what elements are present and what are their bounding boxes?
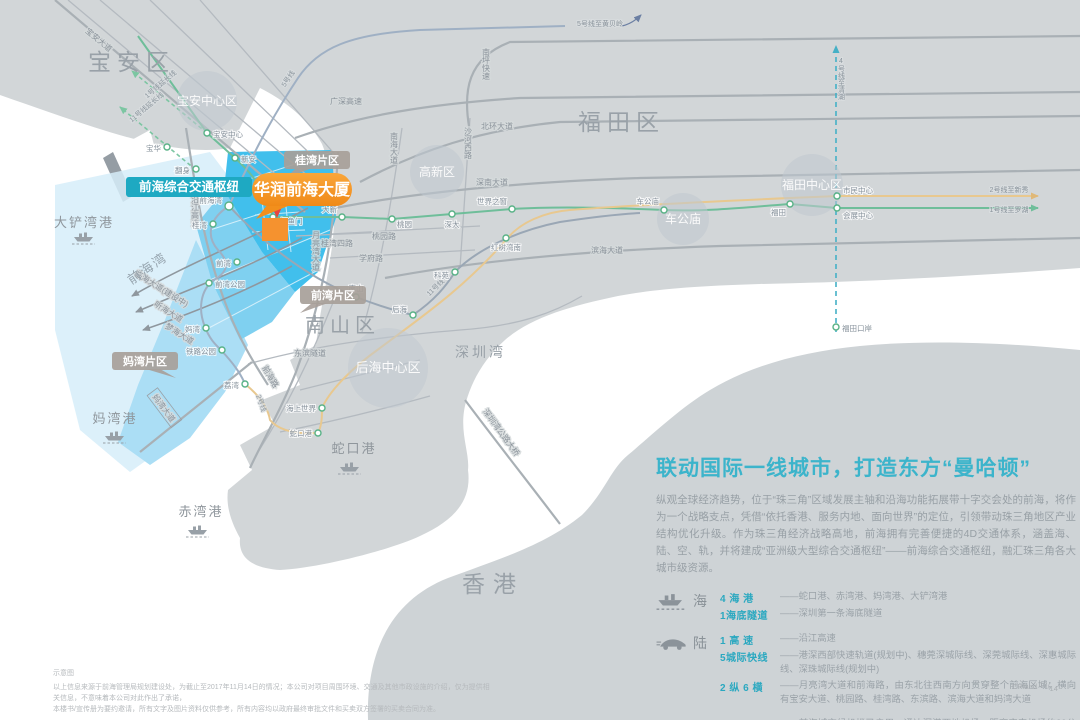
station-dot [206,280,212,286]
station-dot [315,430,321,436]
station-dot [452,269,458,275]
disclaimer-line: 以上信息来源于前海管理局规划建设处，为截止至2017年11月14日的情况；本公司… [53,683,493,705]
station-label: 红树湾南 [491,242,521,252]
station-dot [232,155,238,161]
station-label: 新安 [241,154,256,164]
brand-mark: CRland [1012,682,1037,691]
station-dot [234,259,240,265]
legend-row-desc: ——深圳第一条海底隧道 [780,607,882,622]
page-number: CRland 13/14 [1012,682,1058,691]
port-label: 蛇口港 [331,441,376,456]
road-label: 东滨隧道 [294,348,326,358]
car-icon [656,633,688,653]
station-dot [410,312,416,318]
station-label: 桃园 [397,219,412,229]
station-dot [503,235,509,241]
ship-icon [656,591,688,611]
station-label: 后海 [392,304,407,314]
road-label: 月亮湾大道 [312,231,321,272]
zone-circle-label: 后海中心区 [355,360,420,375]
station-dot [193,166,199,172]
station-label: 宝华 [146,143,161,153]
port-label: 赤湾港 [178,504,223,519]
station-label: 荔湾 [224,380,239,390]
legend-row-desc: ——沿江高速 [780,632,836,647]
road-label: 北环大道 [481,121,513,131]
road-label: 广深高速 [330,96,362,106]
legend: 海 4 海 港——蛇口港、赤湾港、妈湾港、大铲湾港 1海底隧道——深圳第一条海底… [656,590,1076,720]
station-dot [449,211,455,217]
zone-circle-label: 宝安中心区 [177,93,237,108]
station-label: 翻身 [175,165,190,175]
station-label: 蛇口港 [290,428,313,438]
page-number-top: 13 [1039,680,1047,689]
metro-line-label: 1号线至罗湖 [990,205,1029,214]
station-label: 妈湾 [185,324,200,334]
station-dot [787,201,793,207]
legend-row: 1 高 速——沿江高速 [720,632,1076,647]
station-label: 铁路公园 [186,346,216,356]
district-label: 深圳湾 [455,344,506,360]
area-tag-label: 桂湾片区 [294,153,339,167]
disclaimer-tag: 示意图 [53,669,493,680]
station-dot [203,325,209,331]
port-label: 妈湾港 [92,411,137,426]
legend-group-land: 陆 1 高 速——沿江高速 5城际快线——港深西部快速轨道(规划中)、穗莞深城际… [656,632,1076,709]
metro-line-label: 4号线至清湖 [838,58,846,101]
port-label: 大铲湾港 [54,215,114,230]
legend-row-head: 2 纵 6 横 [720,679,780,707]
disclaimer: 示意图 以上信息来源于前海管理局规划建设处，为截止至2017年11月14日的情况… [53,669,493,715]
legend-row: 5城际快线——港深西部快速轨道(规划中)、穗莞深城际线、深莞城际线、深惠城际线、… [720,649,1076,677]
road-label: 深南大道 [476,177,508,187]
station-label: 世界之窗 [477,196,507,206]
area-tag-label: 前湾片区 [311,288,355,302]
station-label: 宝安中心 [213,129,243,139]
legend-row: 4 海 港——蛇口港、赤湾港、妈湾港、大铲湾港 [720,590,1076,605]
station-dot [225,202,233,210]
panel-title: 联动国际一线城市，打造东方“曼哈顿” [656,452,1076,482]
road-label: 桃园路 [372,231,396,241]
station-dot [164,144,170,150]
building-footprint [262,218,288,241]
legend-row-head: 1 高 速 [720,632,780,647]
station-dot [319,405,325,411]
road-label: 南坪快速 [482,47,491,81]
legend-category-label: 陆 [693,633,707,653]
station-label: 桂湾 [192,220,207,230]
station-dot [389,216,395,222]
page-number-bottom: 14 [1050,684,1058,693]
legend-category-label: 海 [693,591,707,611]
legend-row-head: 4 海 港 [720,590,780,605]
station-label: 科苑 [434,270,449,280]
district-label: 宝安区 [88,49,175,75]
panel-paragraph: 纵观全球经济趋势，位于“珠三角”区域发展主轴和沿海功能拓展带十字交会处的前海，将… [656,492,1076,577]
zone-circle-label: 车公庙 [665,211,701,226]
station-label: 前湾公园 [215,279,245,289]
station-label: 车公庙 [637,196,660,206]
station-label: 福田口岸 [842,324,872,333]
road-label: 南海大道 [390,131,399,165]
station-dot [834,193,840,199]
hub-tag: 前海综合交通枢纽 [126,177,252,197]
disclaimer-line: 本楼书/宣传册为要约邀请，所有文字及图片资料仅供参考，所有内容均以政府最终审批文… [53,705,493,716]
hub-tag-label: 前海综合交通枢纽 [139,179,240,194]
station-label: 深大 [445,219,460,229]
legend-row-head: 1海底隧道 [720,607,780,622]
district-label: 福田区 [578,109,665,135]
station-dot [219,347,225,353]
road-label: 学府路 [359,253,383,263]
station-dot [204,130,210,136]
metro-line-label: 5号线至黄贝岭 [577,19,623,28]
building-bubble-label: 华润前海大厦 [254,180,351,199]
zone-circle-label: 高新区 [419,164,455,179]
station-label: 福田 [771,208,786,217]
station-label: 前湾 [216,258,231,268]
station-dot [661,207,667,213]
legend-group-sea: 海 4 海 港——蛇口港、赤湾港、妈湾港、大铲湾港 1海底隧道——深圳第一条海底… [656,590,1076,624]
area-tag-label: 妈湾片区 [123,354,167,368]
zone-circle-label: 福田中心区 [782,177,842,192]
station-dot [834,205,840,211]
info-panel: 联动国际一线城市，打造东方“曼哈顿” 纵观全球经济趋势，位于“珠三角”区域发展主… [656,452,1076,720]
station-dot [509,206,515,212]
legend-row-desc: ——蛇口港、赤湾港、妈湾港、大铲湾港 [780,590,947,605]
road-label: 沙河西路 [464,127,473,159]
road-label: 桂湾四路 [321,238,353,248]
legend-row: 1海底隧道——深圳第一条海底隧道 [720,607,1076,622]
station-label: 会展中心 [843,210,873,220]
district-label: 香港 [462,571,524,597]
brochure-map-page: 宝安中心区 高新区 福田中心区 车公庙 后海中心区 宝安大道 广深高速 北环大道… [0,0,1080,720]
metro-line-label: 2号线至新秀 [990,185,1029,194]
station-dot [339,214,345,220]
station-dot [242,381,248,387]
station-label: 海上世界 [286,403,316,413]
station-dot [833,324,839,330]
station-label: 市民中心 [843,185,873,195]
station-dot [210,221,216,227]
legend-row-head: 5城际快线 [720,649,780,677]
district-label: 南山区 [305,314,380,337]
legend-row-desc: ——港深西部快速轨道(规划中)、穗莞深城际线、深莞城际线、深惠城际线、深珠城际线… [780,649,1076,677]
road-label: 滨海大道 [591,245,623,255]
